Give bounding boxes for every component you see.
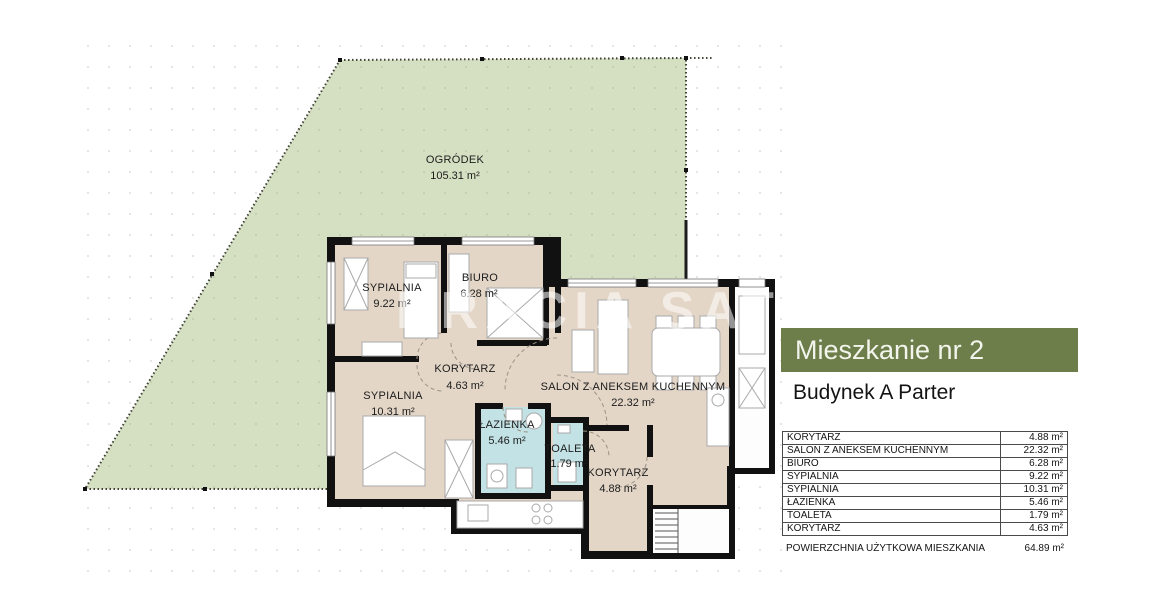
room-area-table-body: KORYTARZ4.88 m²SALON Z ANEKSEM KUCHENNYM… [783, 432, 1068, 536]
room-area-cell: 4.88 m² [1001, 432, 1068, 445]
room-area-cell: 9.22 m² [1001, 471, 1068, 484]
svg-text:4.63 m²: 4.63 m² [446, 380, 484, 392]
apartment-title-banner: Mieszkanie nr 2 [781, 328, 1078, 372]
room-area-cell: 22.32 m² [1001, 445, 1068, 458]
room-label-korytarz-2: KORYTARZ [587, 467, 648, 479]
floorplan-page: OGRÓDEK 105.31 m² SYPIALNIA 9.22 m² BIUR… [0, 0, 1151, 611]
floorplan-drawing: OGRÓDEK 105.31 m² SYPIALNIA 9.22 m² BIUR… [0, 0, 800, 611]
table-row: SYPIALNIA9.22 m² [783, 471, 1068, 484]
room-area-cell: 4.63 m² [1001, 523, 1068, 536]
wardrobe-icon [739, 368, 765, 408]
room-area-cell: 6.28 m² [1001, 458, 1068, 471]
total-area-value: 64.89 m² [1025, 543, 1064, 554]
svg-text:22.32 m²: 22.32 m² [611, 397, 655, 409]
room-name-cell: BIURO [783, 458, 1001, 471]
room-label-korytarz-1: KORYTARZ [434, 363, 495, 375]
table-row: SALON Z ANEKSEM KUCHENNYM22.32 m² [783, 445, 1068, 458]
svg-text:1.79 m²: 1.79 m² [550, 458, 588, 470]
table-row: KORYTARZ4.88 m² [783, 432, 1068, 445]
room-area-cell: 10.31 m² [1001, 484, 1068, 497]
room-name-cell: ŁAZIENKA [783, 497, 1001, 510]
room-name-cell: SYPIALNIA [783, 484, 1001, 497]
room-name-cell: KORYTARZ [783, 523, 1001, 536]
toilet-icon [516, 468, 532, 488]
table-row: SYPIALNIA10.31 m² [783, 484, 1068, 497]
total-area-label: POWIERZCHNIA UŻYTKOWA MIESZKANIA [786, 543, 985, 554]
garden-label: OGRÓDEK [426, 153, 485, 166]
svg-text:10.31 m²: 10.31 m² [371, 406, 415, 418]
room-area-cell: 5.46 m² [1001, 497, 1068, 510]
building-subtitle: Budynek A Parter [793, 381, 955, 405]
room-label-toaleta: TOALETA [544, 443, 596, 455]
washer-icon [487, 464, 507, 488]
desk-icon [362, 342, 402, 356]
developer-watermark: BRACIA SATURSCY [396, 282, 800, 340]
bed-icon [363, 416, 425, 486]
room-label-sypialnia-2: SYPIALNIA [363, 390, 423, 402]
total-area-row: POWIERZCHNIA UŻYTKOWA MIESZKANIA 64.89 m… [782, 541, 1068, 554]
table-row: BIURO6.28 m² [783, 458, 1068, 471]
wardrobe-icon [445, 440, 473, 498]
svg-text:5.46 m²: 5.46 m² [488, 435, 526, 447]
room-name-cell: SYPIALNIA [783, 471, 1001, 484]
room-label-lazienka: ŁAZIENKA [479, 419, 535, 431]
garden-area-label: 105.31 m² [430, 170, 480, 182]
room-name-cell: TOALETA [783, 510, 1001, 523]
room-area-cell: 1.79 m² [1001, 510, 1068, 523]
room-label-salon: SALON Z ANEKSEM KUCHENNYM [541, 381, 726, 393]
table-row: TOALETA1.79 m² [783, 510, 1068, 523]
table-row: KORYTARZ4.63 m² [783, 523, 1068, 536]
room-area-table: KORYTARZ4.88 m²SALON Z ANEKSEM KUCHENNYM… [782, 431, 1068, 536]
room-name-cell: SALON Z ANEKSEM KUCHENNYM [783, 445, 1001, 458]
sink-icon [558, 425, 570, 433]
page-title: Mieszkanie nr 2 [795, 335, 984, 366]
room-name-cell: KORYTARZ [783, 432, 1001, 445]
svg-text:4.88 m²: 4.88 m² [599, 483, 637, 495]
table-row: ŁAZIENKA5.46 m² [783, 497, 1068, 510]
